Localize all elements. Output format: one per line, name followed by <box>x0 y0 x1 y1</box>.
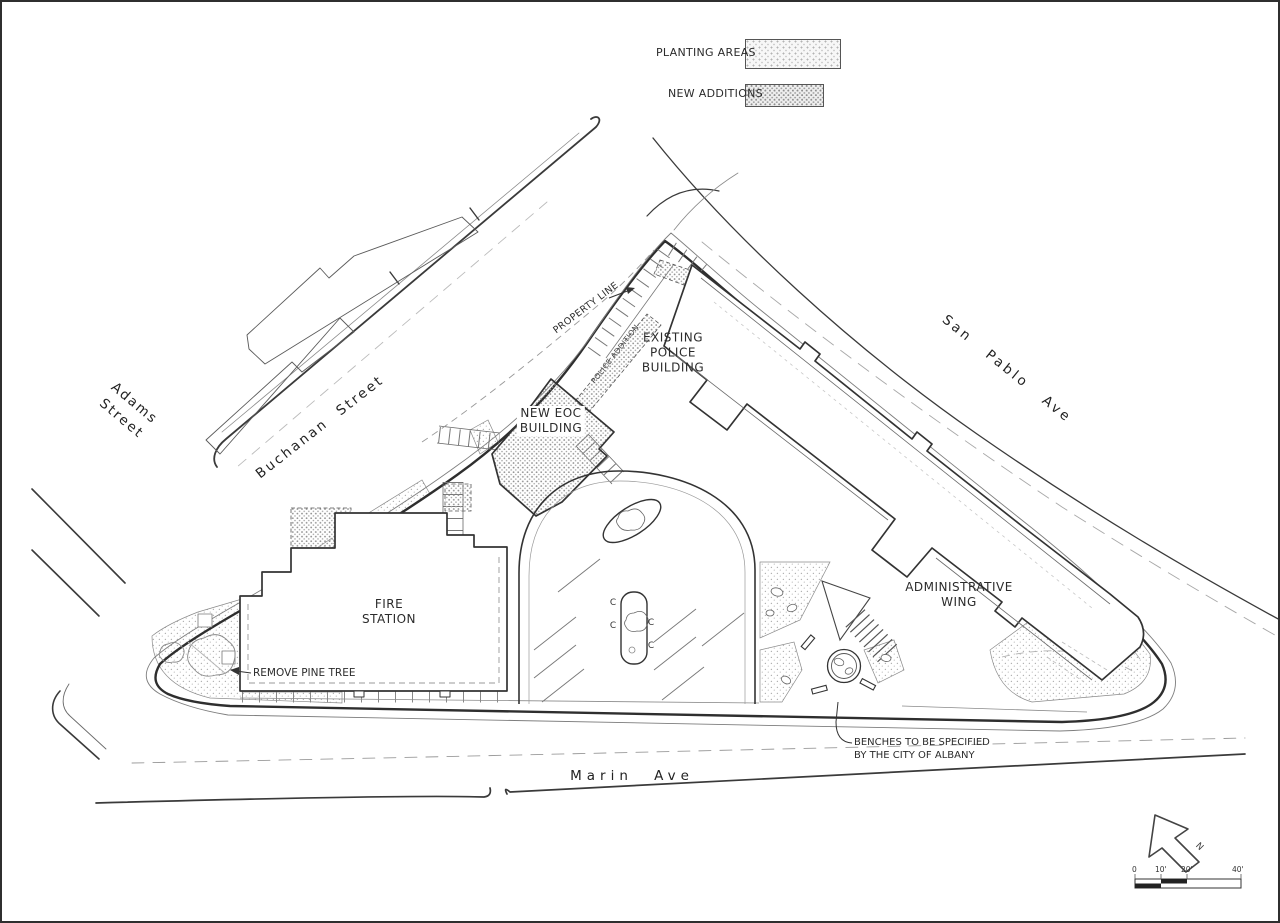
north-arrow-icon <box>1149 815 1199 872</box>
adams-corner-curb-2 <box>63 684 106 749</box>
streets-linework <box>32 117 1280 803</box>
site-plan-sheet: PLANTING AREAS NEW ADDITIONS EXISTING PO… <box>0 0 1280 923</box>
stall-mark-c4: C <box>648 641 654 651</box>
legend-planting-swatch <box>745 39 841 69</box>
scale-tick-10: 10' <box>1155 865 1167 874</box>
plaza-triangle <box>822 581 870 640</box>
legend-additions-label: NEW ADDITIONS <box>668 87 763 100</box>
planter-box-2 <box>222 651 235 664</box>
sanpablo-far-edge <box>674 173 738 230</box>
site-plan-drawing <box>2 2 1280 923</box>
parking-island-center <box>621 592 647 664</box>
buchanan-gutter <box>222 133 579 432</box>
admin-wing-label: ADMINISTRATIVE WING <box>905 580 1013 610</box>
stall-mark-c2: C <box>610 621 616 631</box>
scale-tick-40: 40' <box>1232 865 1244 874</box>
north-parking-strip-b <box>206 318 354 454</box>
planter-box-1 <box>198 614 212 627</box>
marin-sidewalk-edge-2 <box>902 706 1087 712</box>
planting-plaza-2 <box>760 642 802 702</box>
parking-island-oval <box>597 491 668 550</box>
bench-leader <box>836 702 852 743</box>
planting-strip-3 <box>470 420 498 454</box>
stall-mark-c1: C <box>610 598 616 608</box>
adams-corner-curb-1 <box>53 691 99 759</box>
benches-note: BENCHES TO BE SPECIFIED BY THE CITY OF A… <box>854 736 990 762</box>
planting-plaza-1 <box>760 562 830 638</box>
legend-planting-label: PLANTING AREAS <box>656 46 756 59</box>
marin-ave-label: Marin Ave <box>570 768 694 784</box>
stall-mark-c3: C <box>648 618 654 628</box>
eoc-building-label: NEW EOC BUILDING <box>517 406 585 436</box>
fire-door-tab-1 <box>354 691 364 697</box>
fire-station-label: FIRE STATION <box>362 597 416 627</box>
planter-circle-outer <box>828 650 861 683</box>
remove-pine-tree-note: REMOVE PINE TREE <box>253 667 355 680</box>
scale-tick-20: 20' <box>1181 865 1193 874</box>
fire-door-tab-2 <box>440 691 450 697</box>
police-admin-building <box>664 265 1144 680</box>
marin-centerline <box>132 738 1245 763</box>
buchanan-centerline <box>237 202 547 467</box>
adams-curb-2 <box>32 550 99 616</box>
fire-addition-4 <box>445 484 471 511</box>
adams-curb-1 <box>32 489 125 583</box>
scale-tick-0: 0 <box>1132 865 1137 874</box>
marin-south-curb-west <box>96 788 490 803</box>
police-building-label: EXISTING POLICE BUILDING <box>642 331 704 376</box>
scale-bar <box>1135 874 1241 888</box>
